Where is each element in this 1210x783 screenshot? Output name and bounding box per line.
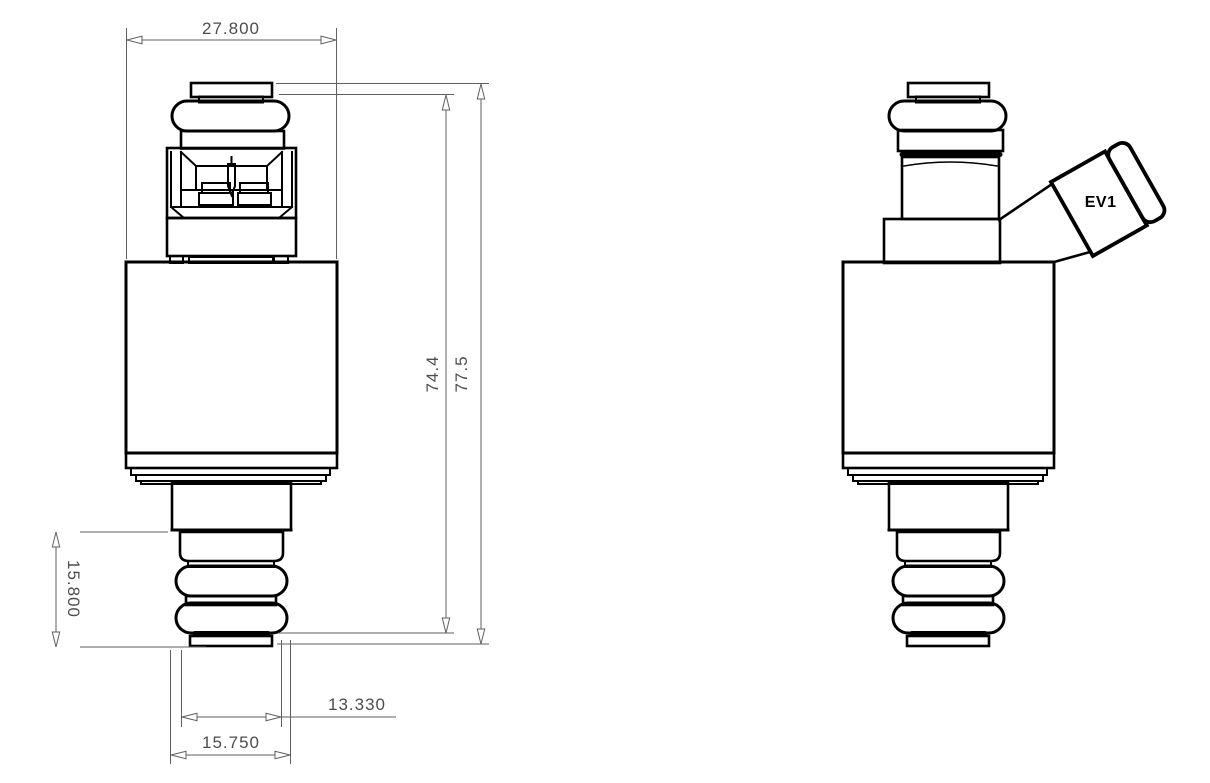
drawing-sheet: 27.800 77.5 74.4 15.800 xyxy=(0,0,1210,783)
connector-boss-lower-edge xyxy=(1054,252,1090,262)
side-injector-outline xyxy=(843,83,1054,646)
connector-bevel-bottom-left xyxy=(171,207,184,218)
tube-shoulder-curve xyxy=(904,162,997,166)
nozzle-holder xyxy=(172,483,291,530)
dim-lower-body-width: 15.750 xyxy=(171,640,291,764)
collar-block xyxy=(884,219,1000,263)
connector-bevel-top-left xyxy=(181,152,196,166)
arrowhead-bottom xyxy=(52,632,59,647)
connector-boss-upper-edge xyxy=(999,184,1052,220)
nozzle-tip xyxy=(190,636,272,646)
front-view: 27.800 77.5 74.4 15.800 xyxy=(52,19,489,764)
lower-oring-1 xyxy=(893,566,1004,596)
dim-value: 27.800 xyxy=(202,19,260,38)
ev1-connector-end-cap xyxy=(1105,140,1168,226)
connector-base xyxy=(167,218,296,256)
connector-bevel-top-right xyxy=(267,152,282,166)
dim-height-to-seat: 74.4 xyxy=(278,95,454,634)
lower-oring-2 xyxy=(893,603,1004,633)
arrowhead-right xyxy=(275,751,290,758)
dim-overall-height: 77.5 xyxy=(276,84,489,645)
arrowhead-left xyxy=(127,36,142,44)
dim-tip-seat-width: 13.330 xyxy=(182,640,397,727)
upper-tube xyxy=(902,157,999,219)
technical-drawing-canvas: 27.800 77.5 74.4 15.800 xyxy=(0,0,1210,783)
lower-oring-2 xyxy=(176,603,287,633)
upper-neck xyxy=(181,131,284,149)
body-skirt xyxy=(126,453,337,468)
dim-value: 15.800 xyxy=(64,560,83,618)
arrowhead-bottom xyxy=(442,618,449,633)
nozzle-tip xyxy=(907,636,989,646)
arrowhead-top xyxy=(52,532,59,547)
dim-value: 77.5 xyxy=(452,355,471,392)
arrowhead-top xyxy=(442,95,449,110)
retainer-collar xyxy=(897,532,1000,561)
dim-top-width: 27.800 xyxy=(127,19,337,259)
upper-oring xyxy=(172,101,289,131)
terminal-left-cap xyxy=(202,183,230,193)
arrowhead-top xyxy=(477,84,484,99)
front-injector-outline xyxy=(126,83,337,646)
arrowhead-left xyxy=(171,751,186,758)
coil-body xyxy=(843,262,1054,453)
ev1-connector-body: EV1 xyxy=(1051,140,1168,256)
lower-oring-1 xyxy=(176,566,287,596)
inlet-cap xyxy=(191,83,272,97)
ring-section xyxy=(898,130,1003,151)
dim-value: 74.4 xyxy=(423,355,442,392)
terminal-right-cap xyxy=(240,183,268,193)
retainer-collar xyxy=(180,532,283,561)
dim-value: 13.330 xyxy=(328,695,386,714)
arrowhead-left xyxy=(182,713,197,720)
connector-bevel-bottom-right xyxy=(279,207,292,218)
inlet-cap xyxy=(908,83,989,97)
body-skirt xyxy=(843,453,1054,468)
terminal-left-body xyxy=(199,193,233,205)
ev1-connector-label: EV1 xyxy=(1085,194,1117,211)
coil-body xyxy=(126,262,337,453)
ev1-connector: EV1 xyxy=(999,140,1168,262)
arrowhead-right xyxy=(266,713,281,720)
side-view: EV1 xyxy=(843,83,1168,646)
dim-value: 15.750 xyxy=(202,733,260,752)
arrowhead-right xyxy=(321,36,336,44)
terminal-right-body xyxy=(238,193,271,205)
nozzle-holder xyxy=(889,483,1008,530)
upper-oring xyxy=(889,101,1006,131)
arrowhead-bottom xyxy=(477,629,484,644)
